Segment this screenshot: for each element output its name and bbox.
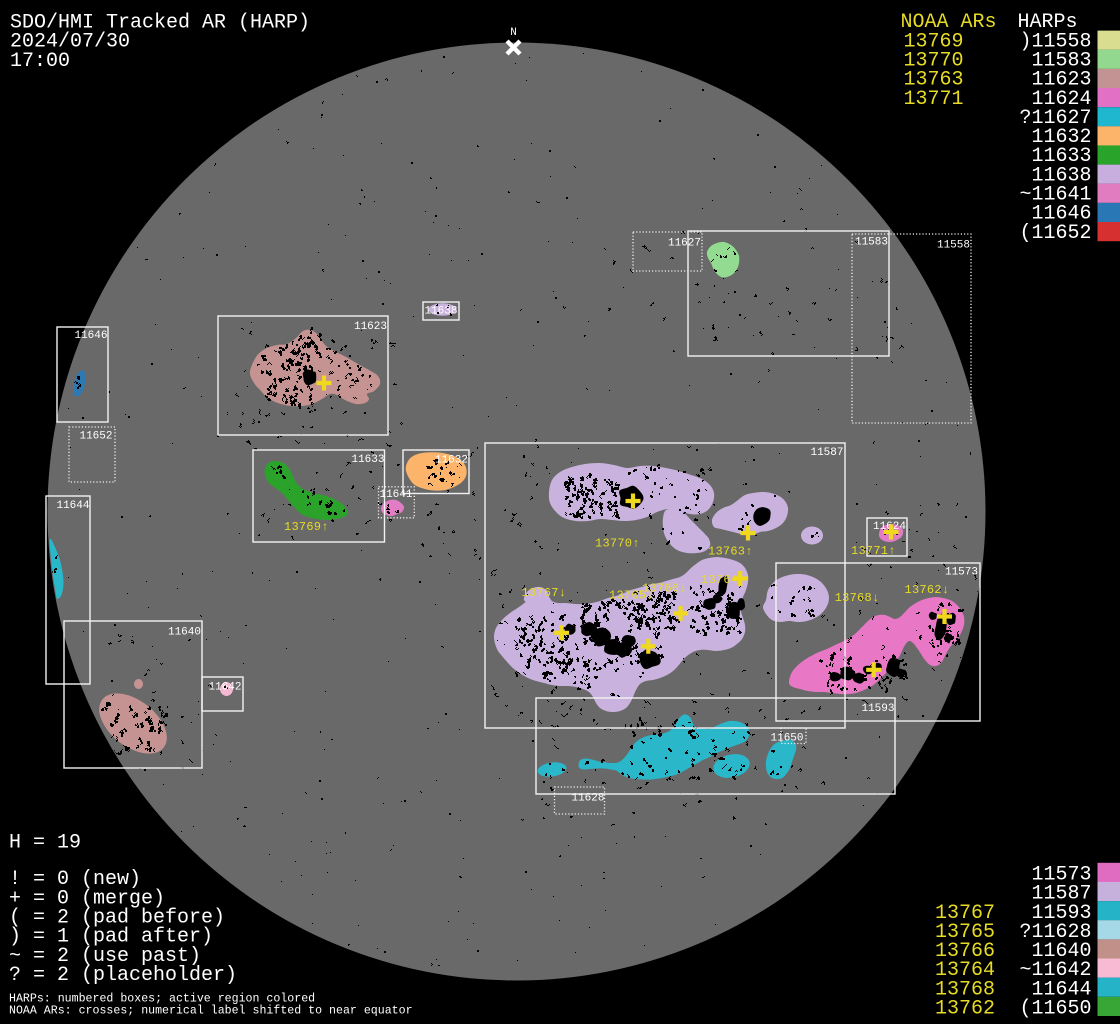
svg-text:17:00: 17:00 (10, 50, 70, 73)
svg-text:13763↑: 13763↑ (708, 545, 753, 559)
svg-text:11632: 11632 (435, 455, 468, 467)
svg-text:11641: 11641 (379, 489, 412, 501)
svg-text:11593: 11593 (861, 703, 894, 715)
svg-text:13769↑: 13769↑ (284, 520, 329, 534)
svg-text:(11650: (11650 (1019, 998, 1091, 1021)
svg-text:11628: 11628 (571, 793, 604, 805)
svg-text:13767↓: 13767↓ (522, 586, 567, 600)
svg-text:11627: 11627 (668, 238, 701, 250)
svg-text:11646: 11646 (74, 330, 107, 342)
svg-text:(11652: (11652 (1019, 222, 1091, 245)
svg-text:13770↑: 13770↑ (595, 537, 640, 551)
svg-text:11644: 11644 (56, 500, 89, 512)
svg-text:13768↓: 13768↓ (835, 591, 880, 605)
svg-text:? = 2 (placeholder): ? = 2 (placeholder) (9, 964, 237, 987)
svg-text:11587: 11587 (810, 447, 843, 459)
svg-text:13762: 13762 (935, 998, 995, 1021)
svg-text:11583: 11583 (855, 237, 888, 249)
svg-text:H = 19: H = 19 (9, 832, 81, 855)
svg-text:11638: 11638 (424, 306, 457, 318)
svg-text:13762↓: 13762↓ (905, 583, 950, 597)
svg-text:11623: 11623 (354, 321, 387, 333)
svg-text:11650: 11650 (771, 733, 804, 745)
svg-text:13771↑: 13771↑ (851, 544, 896, 558)
svg-text:N: N (510, 27, 517, 39)
svg-text:11573: 11573 (945, 567, 978, 579)
svg-text:13764: 13764 (701, 573, 738, 587)
svg-text:13771: 13771 (904, 88, 964, 111)
svg-text:11558: 11558 (937, 240, 970, 252)
svg-text:11640: 11640 (168, 627, 201, 639)
svg-text:11652: 11652 (79, 431, 112, 443)
svg-text:11642: 11642 (208, 682, 241, 694)
svg-text:11633: 11633 (351, 454, 384, 466)
svg-text:NOAA ARs: crosses; numerical l: NOAA ARs: crosses; numerical label shift… (9, 1005, 413, 1018)
svg-text:13766↓: 13766↓ (642, 582, 687, 596)
